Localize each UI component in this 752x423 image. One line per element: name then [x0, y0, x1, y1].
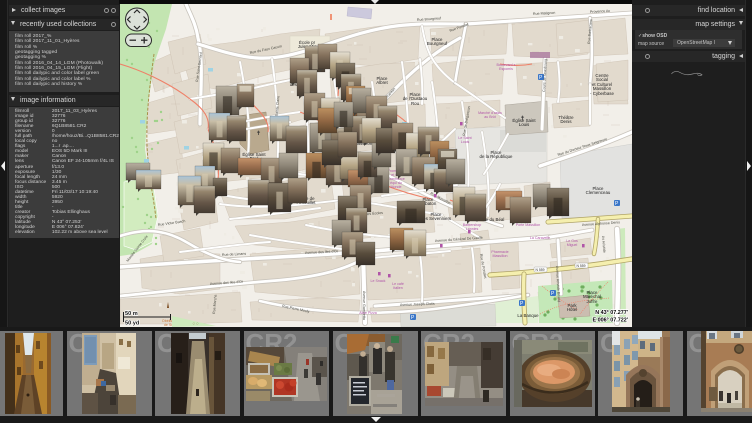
svg-text:Italien: Italien	[393, 286, 403, 290]
svg-text:Rou: Rou	[411, 101, 420, 106]
svg-text:La Caravelle: La Caravelle	[530, 236, 550, 240]
svg-text:Alice Pizza: Alice Pizza	[359, 311, 377, 315]
svg-text:Louis: Louis	[461, 140, 470, 144]
svg-text:Avenue Gambetta: Avenue Gambetta	[362, 291, 366, 320]
svg-text:50 m: 50 m	[125, 311, 138, 317]
svg-text:✝: ✝	[520, 115, 525, 122]
svg-text:Porte Massillon: Porte Massillon	[516, 223, 541, 227]
svg-text:au Brût: au Brût	[484, 115, 496, 119]
svg-text:- Cyberbase: - Cyberbase	[590, 91, 614, 96]
svg-text:Bourgneuf: Bourgneuf	[427, 41, 448, 46]
svg-text:Albret: Albret	[376, 80, 388, 85]
svg-text:Hôtel: Hôtel	[567, 307, 577, 312]
svg-text:N 559: N 559	[536, 268, 545, 272]
svg-text:La Banque: La Banque	[517, 313, 539, 318]
svg-text:Monde: Monde	[391, 185, 402, 189]
svg-text:Denis: Denis	[560, 119, 572, 124]
svg-text:N 43° 07.277': N 43° 07.277'	[595, 310, 628, 316]
svg-text:N 559: N 559	[577, 264, 586, 268]
svg-text:Louis: Louis	[519, 122, 530, 127]
svg-text:des Sevenniers: des Sevenniers	[421, 216, 452, 221]
svg-text:de la République: de la République	[480, 154, 514, 159]
svg-text:Massillon: Massillon	[493, 254, 508, 258]
svg-text:Le Snack: Le Snack	[371, 279, 386, 283]
svg-text:Joffre: Joffre	[587, 299, 598, 304]
svg-text:♢♢: ♢♢	[192, 321, 199, 326]
svg-text:✝: ✝	[256, 130, 261, 137]
svg-text:Clemenceau: Clemenceau	[586, 190, 611, 195]
svg-text:Lannies: Lannies	[466, 227, 479, 231]
svg-text:50 yd: 50 yd	[125, 321, 140, 327]
svg-text:Espomis: Espomis	[499, 67, 513, 71]
svg-text:Miguel: Miguel	[567, 243, 578, 247]
svg-text:E 006° 07.722': E 006° 07.722'	[592, 318, 628, 324]
